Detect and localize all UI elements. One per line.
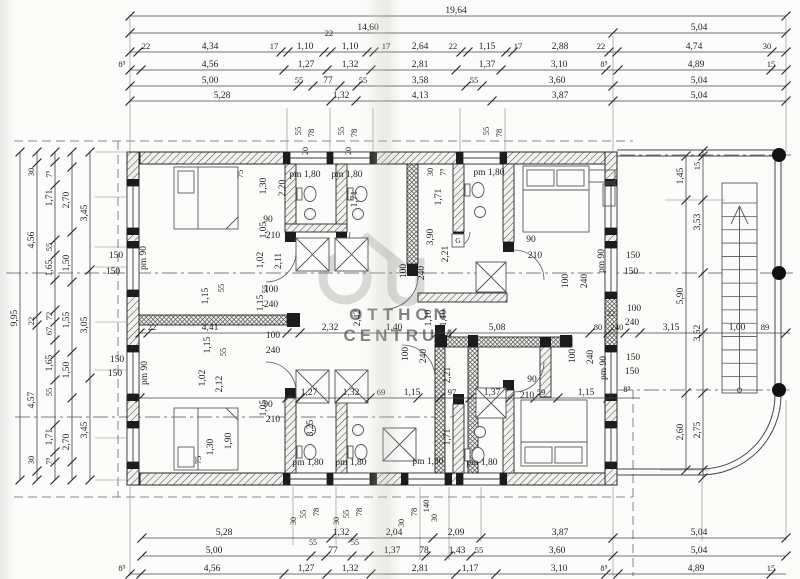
svg-text:30: 30 [289, 517, 298, 525]
svg-text:1,15: 1,15 [578, 388, 595, 398]
svg-text:1,32: 1,32 [343, 388, 360, 398]
svg-text:1,43: 1,43 [449, 546, 466, 556]
svg-text:4,89: 4,89 [688, 564, 705, 574]
svg-text:3,45: 3,45 [80, 204, 90, 221]
svg-text:1,10: 1,10 [439, 309, 449, 326]
svg-text:55: 55 [470, 75, 479, 85]
scanned-floor-plan-page: OTTHON CENTRUM [0, 0, 800, 579]
svg-text:1,55: 1,55 [62, 311, 72, 328]
floor-plan-drawing: OTTHON CENTRUM [0, 0, 800, 579]
svg-text:pm 1,80: pm 1,80 [466, 458, 497, 468]
svg-text:22: 22 [142, 41, 151, 51]
svg-text:1,15: 1,15 [201, 287, 211, 304]
svg-text:55: 55 [295, 75, 304, 85]
svg-text:2,70: 2,70 [62, 433, 72, 450]
svg-text:4,56: 4,56 [202, 60, 219, 70]
svg-text:2,81: 2,81 [412, 60, 429, 70]
svg-text:3,53: 3,53 [693, 213, 703, 230]
svg-text:G: G [455, 236, 461, 245]
svg-text:8⁵: 8⁵ [118, 563, 125, 573]
svg-text:17: 17 [270, 41, 279, 51]
svg-text:3,60: 3,60 [549, 546, 566, 556]
svg-text:1,40: 1,40 [386, 323, 403, 333]
svg-text:89: 89 [761, 322, 770, 332]
svg-text:2,21: 2,21 [441, 245, 451, 262]
svg-text:1,10: 1,10 [297, 42, 314, 52]
svg-text:55: 55 [293, 127, 303, 136]
svg-text:5,04: 5,04 [691, 91, 708, 101]
svg-text:210: 210 [520, 391, 535, 401]
svg-text:22: 22 [449, 41, 458, 51]
svg-text:22: 22 [26, 317, 36, 326]
svg-text:30: 30 [425, 168, 435, 177]
svg-text:2,21: 2,21 [443, 366, 453, 383]
svg-text:pm 90: pm 90 [599, 356, 609, 380]
svg-text:5,90: 5,90 [676, 287, 686, 304]
svg-text:17: 17 [382, 41, 391, 51]
bed-upper-left [174, 167, 238, 229]
svg-text:pm 1,80: pm 1,80 [335, 458, 366, 468]
svg-text:22: 22 [325, 28, 334, 38]
svg-text:2,60: 2,60 [676, 423, 686, 440]
svg-text:30: 30 [397, 519, 406, 527]
svg-text:3,25: 3,25 [306, 419, 316, 436]
svg-text:pm 90: pm 90 [597, 249, 607, 273]
svg-text:1,15: 1,15 [256, 294, 266, 311]
svg-text:78: 78 [311, 508, 321, 517]
svg-text:1,37: 1,37 [479, 60, 496, 70]
svg-text:9,95: 9,95 [10, 309, 20, 326]
svg-text:55: 55 [309, 538, 317, 547]
svg-text:1,50: 1,50 [62, 254, 72, 271]
svg-text:8⁵: 8⁵ [600, 563, 607, 573]
svg-text:30: 30 [763, 41, 772, 51]
svg-text:78: 78 [494, 129, 504, 138]
svg-text:2,70: 2,70 [62, 191, 72, 208]
svg-text:100: 100 [399, 264, 409, 279]
svg-text:22: 22 [148, 322, 157, 332]
svg-text:4,41: 4,41 [202, 323, 219, 333]
svg-text:77: 77 [328, 546, 338, 556]
svg-text:55: 55 [218, 348, 228, 357]
svg-text:55: 55 [260, 285, 270, 294]
svg-text:67: 67 [44, 327, 54, 336]
svg-text:2,11: 2,11 [274, 253, 284, 270]
svg-text:pm 1,80: pm 1,80 [292, 458, 323, 468]
svg-text:8⁵: 8⁵ [623, 384, 630, 394]
svg-text:240: 240 [264, 300, 279, 310]
svg-text:2,12: 2,12 [215, 375, 225, 392]
svg-text:8⁵: 8⁵ [118, 59, 125, 69]
svg-text:2,75: 2,75 [693, 421, 703, 438]
svg-text:1,15: 1,15 [479, 42, 496, 52]
svg-text:72: 72 [44, 312, 54, 321]
svg-text:4,89: 4,89 [688, 60, 705, 70]
svg-text:30: 30 [332, 517, 341, 525]
svg-text:150: 150 [110, 355, 125, 365]
svg-text:55: 55 [216, 284, 226, 293]
svg-text:1,37: 1,37 [484, 388, 501, 398]
svg-text:100: 100 [561, 274, 571, 289]
svg-text:30: 30 [430, 514, 439, 522]
svg-text:5,04: 5,04 [691, 23, 708, 33]
svg-text:75: 75 [235, 170, 245, 179]
svg-text:2,04: 2,04 [386, 528, 403, 538]
svg-text:3,10: 3,10 [551, 60, 568, 70]
svg-text:97: 97 [448, 387, 457, 397]
svg-text:19,64: 19,64 [445, 6, 467, 16]
svg-text:1,05: 1,05 [259, 221, 269, 238]
svg-text:90: 90 [526, 235, 536, 245]
svg-text:78: 78 [409, 508, 419, 517]
svg-text:150: 150 [626, 353, 641, 363]
svg-text:15: 15 [692, 162, 702, 171]
svg-text:pm 90: pm 90 [140, 361, 150, 385]
svg-text:pm 1,80: pm 1,80 [473, 168, 504, 178]
svg-text:55: 55 [341, 510, 351, 519]
svg-text:17: 17 [514, 41, 523, 51]
svg-text:75: 75 [193, 456, 203, 465]
svg-text:2,88: 2,88 [552, 42, 569, 52]
svg-text:15: 15 [767, 563, 776, 573]
svg-text:1,50: 1,50 [62, 361, 72, 378]
svg-text:3,15: 3,15 [663, 323, 680, 333]
svg-text:78: 78 [306, 129, 316, 138]
svg-text:240: 240 [625, 318, 640, 328]
svg-text:210: 210 [528, 251, 543, 261]
svg-text:240: 240 [611, 322, 624, 332]
svg-text:100: 100 [627, 304, 642, 314]
svg-text:1,37: 1,37 [384, 546, 401, 556]
svg-text:90: 90 [527, 375, 537, 385]
svg-text:150: 150 [625, 367, 640, 377]
axis-centerlines [6, 155, 793, 417]
svg-text:7⁵: 7⁵ [44, 170, 54, 177]
svg-text:2,64: 2,64 [412, 42, 429, 52]
svg-text:1,32: 1,32 [333, 528, 350, 538]
svg-text:20: 20 [301, 147, 310, 155]
svg-text:3,90: 3,90 [426, 228, 436, 245]
svg-text:1,65: 1,65 [45, 354, 55, 371]
svg-text:20: 20 [344, 147, 353, 155]
staircase [722, 183, 757, 393]
svg-text:1,10: 1,10 [424, 309, 434, 326]
svg-text:55: 55 [475, 545, 484, 555]
svg-text:5,28: 5,28 [214, 91, 231, 101]
svg-text:5,00: 5,00 [202, 76, 219, 86]
svg-text:4,56: 4,56 [204, 564, 221, 574]
svg-text:4,34: 4,34 [202, 42, 219, 52]
svg-text:1,00: 1,00 [729, 323, 746, 333]
svg-text:5,28: 5,28 [216, 528, 233, 538]
svg-text:1,27: 1,27 [298, 564, 315, 574]
svg-text:55: 55 [298, 510, 308, 519]
svg-text:8⁵: 8⁵ [600, 59, 607, 69]
svg-text:3,10: 3,10 [551, 564, 568, 574]
svg-text:2,20: 2,20 [278, 179, 288, 196]
svg-text:55: 55 [359, 75, 368, 85]
svg-text:1,71: 1,71 [443, 428, 453, 445]
svg-text:59: 59 [537, 387, 546, 397]
svg-text:30: 30 [26, 456, 36, 465]
svg-text:55: 55 [336, 127, 346, 136]
svg-text:77: 77 [323, 76, 333, 86]
bed-upper-right [523, 166, 589, 232]
svg-text:3,05: 3,05 [80, 316, 90, 333]
svg-text:1,71: 1,71 [45, 189, 55, 206]
svg-text:1,17: 1,17 [462, 564, 479, 574]
svg-text:1,71: 1,71 [350, 190, 360, 207]
svg-text:4,57: 4,57 [27, 391, 37, 408]
svg-text:15: 15 [767, 59, 776, 69]
svg-text:1,15: 1,15 [203, 336, 213, 353]
svg-text:1,71: 1,71 [434, 188, 444, 205]
svg-text:1,27: 1,27 [298, 60, 315, 70]
svg-text:1,32: 1,32 [342, 60, 359, 70]
svg-text:1,05: 1,05 [259, 399, 269, 416]
svg-text:4,56: 4,56 [27, 231, 37, 248]
svg-text:100: 100 [568, 349, 578, 364]
svg-text:55: 55 [44, 243, 54, 252]
svg-text:1,32: 1,32 [333, 91, 350, 101]
svg-text:78: 78 [419, 546, 429, 556]
svg-text:2,42: 2,42 [353, 309, 363, 326]
svg-text:pm 90: pm 90 [139, 246, 149, 270]
svg-text:240: 240 [586, 350, 596, 365]
svg-text:4,74: 4,74 [686, 42, 703, 52]
svg-text:4,13: 4,13 [412, 91, 429, 101]
svg-text:240: 240 [417, 266, 427, 281]
svg-text:22: 22 [597, 41, 606, 51]
svg-text:3,58: 3,58 [412, 76, 429, 86]
svg-text:1,02: 1,02 [256, 251, 266, 268]
svg-text:55: 55 [351, 538, 359, 547]
svg-text:14,60: 14,60 [357, 23, 379, 33]
svg-text:30: 30 [26, 168, 36, 177]
svg-text:240: 240 [580, 274, 590, 289]
svg-text:1,90: 1,90 [224, 432, 234, 449]
svg-text:78: 78 [354, 508, 364, 517]
svg-text:2,81: 2,81 [412, 564, 429, 574]
svg-text:1,02: 1,02 [198, 369, 208, 386]
svg-text:7⁵: 7⁵ [438, 168, 448, 175]
svg-text:1,10: 1,10 [342, 42, 359, 52]
svg-text:240: 240 [419, 349, 429, 364]
svg-text:pm 1,80: pm 1,80 [412, 457, 443, 467]
svg-text:5,08: 5,08 [489, 323, 506, 333]
svg-text:3,45: 3,45 [80, 421, 90, 438]
svg-text:100: 100 [266, 331, 281, 341]
svg-text:3,87: 3,87 [552, 91, 569, 101]
svg-text:5,04: 5,04 [691, 76, 708, 86]
svg-text:1,65: 1,65 [45, 259, 55, 276]
svg-text:1,45: 1,45 [676, 167, 686, 184]
svg-text:150: 150 [626, 251, 641, 261]
svg-text:1,32: 1,32 [342, 564, 359, 574]
svg-text:5,00: 5,00 [206, 546, 223, 556]
svg-text:7⁵: 7⁵ [44, 457, 54, 464]
svg-text:150: 150 [109, 251, 124, 261]
svg-text:2,32: 2,32 [322, 323, 339, 333]
bed-lower-right [521, 400, 587, 466]
svg-text:80: 80 [594, 322, 603, 332]
svg-text:5,04: 5,04 [691, 528, 708, 538]
terrace-columns [772, 148, 786, 397]
svg-text:78: 78 [349, 129, 359, 138]
svg-text:140: 140 [421, 500, 431, 513]
svg-text:3,60: 3,60 [549, 76, 566, 86]
svg-text:3,52: 3,52 [693, 324, 703, 341]
svg-text:pm 1,80: pm 1,80 [331, 170, 362, 180]
svg-text:2,09: 2,09 [448, 528, 465, 538]
svg-text:1,71: 1,71 [45, 428, 55, 445]
svg-text:69: 69 [377, 387, 386, 397]
svg-text:55: 55 [44, 388, 54, 397]
svg-text:pm 1,80: pm 1,80 [289, 170, 320, 180]
svg-text:3,87: 3,87 [552, 528, 569, 538]
svg-text:1,15: 1,15 [404, 388, 421, 398]
svg-text:1,27: 1,27 [301, 388, 318, 398]
svg-text:150: 150 [624, 267, 639, 277]
svg-text:1,30: 1,30 [259, 177, 269, 194]
svg-text:5,04: 5,04 [691, 546, 708, 556]
svg-text:22: 22 [607, 309, 615, 318]
svg-text:240: 240 [266, 346, 281, 356]
svg-text:1,30: 1,30 [206, 438, 216, 455]
svg-text:150: 150 [106, 267, 121, 277]
watermark-line1: OTTHON [349, 305, 451, 324]
svg-text:150: 150 [108, 369, 123, 379]
svg-text:55: 55 [481, 127, 491, 136]
svg-text:100: 100 [401, 347, 411, 362]
